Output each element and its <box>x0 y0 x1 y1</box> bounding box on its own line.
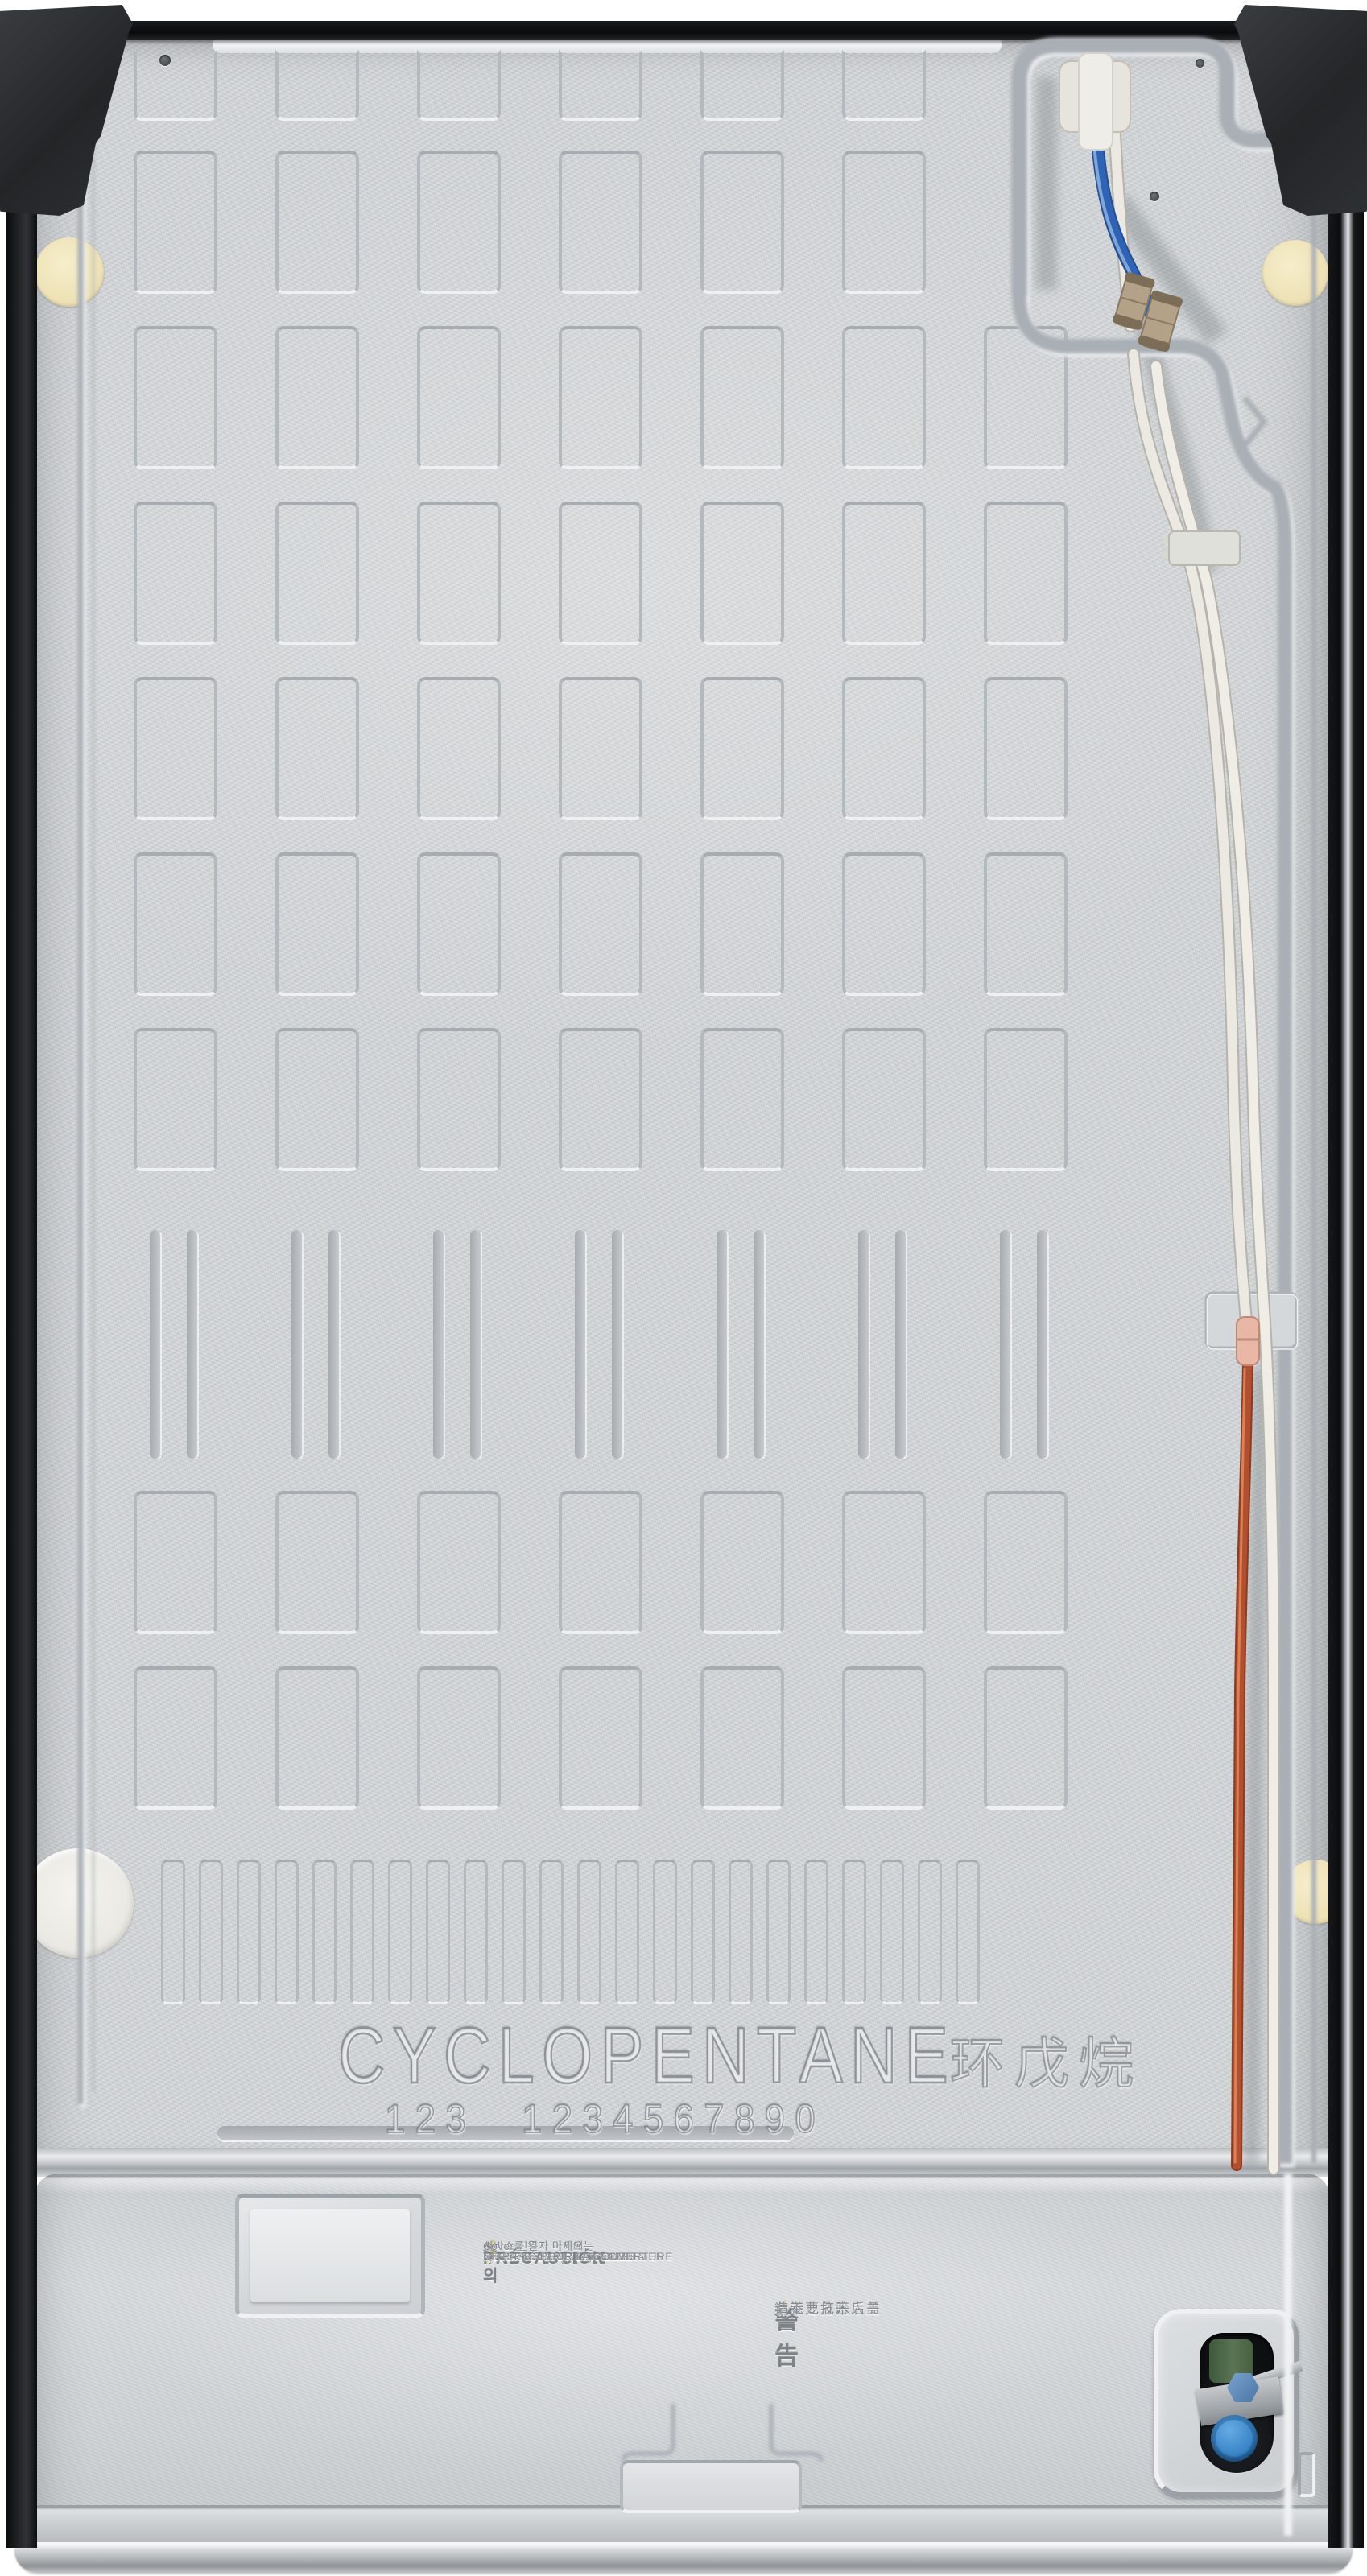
embossed-rectangle <box>842 1028 926 1171</box>
embossed-rectangle <box>275 1491 359 1634</box>
embossed-slot <box>729 1860 753 2004</box>
rating-label-plate <box>235 2194 425 2318</box>
embossed-slot <box>312 1860 337 2004</box>
embossed-rectangle <box>134 50 217 121</box>
embossed-slot <box>880 1860 904 2004</box>
embossed-rectangle <box>559 1666 642 1810</box>
embossed-slot <box>275 1860 299 2004</box>
embossed-slot <box>539 1860 564 2004</box>
embossed-rectangle <box>559 1491 642 1634</box>
embossed-rectangle <box>417 852 501 996</box>
embossed-rectangle <box>134 151 217 294</box>
embossed-slot <box>426 1860 450 2004</box>
embossed-rectangle <box>700 1491 784 1634</box>
embossed-rectangle <box>275 326 359 469</box>
embossed-slot <box>766 1860 791 2004</box>
embossed-rectangle <box>700 1666 784 1810</box>
screw <box>1112 70 1130 88</box>
embossed-rectangle <box>134 1666 217 1810</box>
embossed-rectangle <box>842 50 926 121</box>
embossed-rectangle <box>984 1666 1068 1810</box>
embossed-rectangle <box>417 677 501 820</box>
embossed-slot <box>842 1860 866 2004</box>
screw <box>1274 1307 1293 1327</box>
screw <box>1064 70 1082 88</box>
embossed-digits-right: 1234567890 <box>522 2096 825 2143</box>
embossed-rectangle <box>275 1028 359 1171</box>
center-access-plate <box>620 2460 802 2513</box>
embossed-rectangle <box>842 1666 926 1810</box>
embossed-stripe <box>291 1230 302 1459</box>
embossed-slot <box>653 1860 677 2004</box>
embossed-stripe <box>612 1230 622 1459</box>
panel-hole <box>159 55 171 66</box>
embossed-slot <box>464 1860 488 2004</box>
top-edge-strip <box>97 21 1270 40</box>
embossed-rectangle <box>417 1666 501 1810</box>
screw <box>1204 539 1225 560</box>
embossed-rectangle <box>700 502 784 645</box>
embossed-slot <box>691 1860 715 2004</box>
embossed-rectangle <box>134 326 217 469</box>
embossed-slot <box>804 1860 828 2004</box>
warning-line: NE PAS OUVRIR LA COUVERTURE <box>483 2250 673 2264</box>
embossed-stripe <box>717 1230 727 1459</box>
embossed-slot <box>199 1860 223 2004</box>
embossed-rectangle <box>275 50 359 121</box>
embossed-rectangle <box>700 677 784 820</box>
embossed-rectangle <box>700 1028 784 1171</box>
embossed-rectangle <box>842 151 926 294</box>
embossed-rectangle <box>984 502 1068 645</box>
embossed-stripe <box>754 1230 764 1459</box>
panel-hole <box>1196 59 1204 68</box>
refrigerant-embossed-text: CYCLOPENTANE <box>338 2011 956 2102</box>
embossed-stripe <box>1000 1230 1010 1459</box>
embossed-rectangle <box>559 50 642 121</box>
embossed-rectangle <box>275 151 359 294</box>
embossed-slot <box>388 1860 412 2004</box>
metal-base-strip <box>14 2542 1353 2573</box>
embossed-rectangle <box>984 677 1068 820</box>
embossed-rectangle <box>559 677 642 820</box>
embossed-rectangle <box>134 852 217 996</box>
panel-fold-ridge <box>34 2148 1330 2177</box>
embossed-rectangle <box>700 852 784 996</box>
valve-recess-hook-slot <box>1298 2452 1315 2497</box>
cream-foam-plug <box>1262 240 1328 306</box>
warning-label-stack: ⚡⚠주 의 서비스 전문가 이외에는 Cover를 열지 마세요 ⚡⚠CAUTI… <box>483 2240 708 2250</box>
embossed-stripe <box>575 1230 585 1459</box>
embossed-stripe <box>858 1230 869 1459</box>
cream-foam-plug <box>35 237 104 307</box>
embossed-rectangle <box>984 326 1068 469</box>
embossed-stripe <box>328 1230 339 1459</box>
embossed-rectangle <box>559 151 642 294</box>
embossed-stripe <box>187 1230 197 1459</box>
embossed-rectangle <box>559 852 642 996</box>
embossed-rectangle <box>417 1028 501 1171</box>
embossed-stripe <box>1037 1230 1047 1459</box>
left-edge <box>6 185 37 2548</box>
panel-hole <box>1150 192 1159 201</box>
embossed-rectangle <box>842 326 926 469</box>
embossed-rectangle <box>275 502 359 645</box>
embossed-stripe <box>895 1230 906 1459</box>
embossed-slot <box>956 1860 980 2004</box>
screw <box>1212 1311 1232 1330</box>
embossed-slot <box>577 1860 601 2004</box>
warning-line: 请不要打开后盖 <box>774 2301 882 2318</box>
refrigerator-back-photo: CYCLOPENTANE 环戊烷 123 1234567890 ⚡⚠주 의 서비… <box>0 0 1367 2576</box>
embossed-rectangle <box>984 1028 1068 1171</box>
embossed-rectangle <box>842 677 926 820</box>
embossed-rectangle <box>275 677 359 820</box>
blue-valve-cap <box>1211 2415 1258 2462</box>
embossed-rectangle <box>559 1028 642 1171</box>
embossed-rectangle <box>700 326 784 469</box>
embossed-rectangle <box>559 326 642 469</box>
embossed-slot <box>237 1860 261 2004</box>
embossed-rectangle <box>134 502 217 645</box>
embossed-digits-left: 123 <box>385 2096 476 2143</box>
embossed-rectangle <box>700 50 784 121</box>
right-edge <box>1328 113 1364 2548</box>
embossed-slot <box>502 1860 526 2004</box>
embossed-rectangle <box>134 1028 217 1171</box>
embossed-rectangle <box>417 502 501 645</box>
embossed-slot <box>918 1860 942 2004</box>
embossed-rectangle <box>559 502 642 645</box>
embossed-slot <box>615 1860 639 2004</box>
embossed-rectangle <box>417 1491 501 1634</box>
embossed-rectangle <box>417 50 501 121</box>
refrigerant-embossed-text-chinese: 环戊烷 <box>950 2019 1143 2099</box>
embossed-stripe <box>150 1230 160 1459</box>
embossed-slot <box>161 1860 185 2004</box>
embossed-rectangle <box>842 502 926 645</box>
embossed-rectangle <box>700 151 784 294</box>
embossed-slot <box>350 1860 374 2004</box>
embossed-rectangle <box>984 1491 1068 1634</box>
embossed-rectangle <box>417 151 501 294</box>
embossed-rectangle <box>842 852 926 996</box>
embossed-rectangle <box>275 1666 359 1810</box>
embossed-rectangle <box>134 677 217 820</box>
embossed-rectangle <box>842 1491 926 1634</box>
embossed-rectangle <box>275 852 359 996</box>
embossed-rectangle <box>984 852 1068 996</box>
embossed-stripe <box>470 1230 481 1459</box>
embossed-rectangle <box>134 1491 217 1634</box>
embossed-stripe <box>433 1230 444 1459</box>
embossed-rectangle <box>417 326 501 469</box>
